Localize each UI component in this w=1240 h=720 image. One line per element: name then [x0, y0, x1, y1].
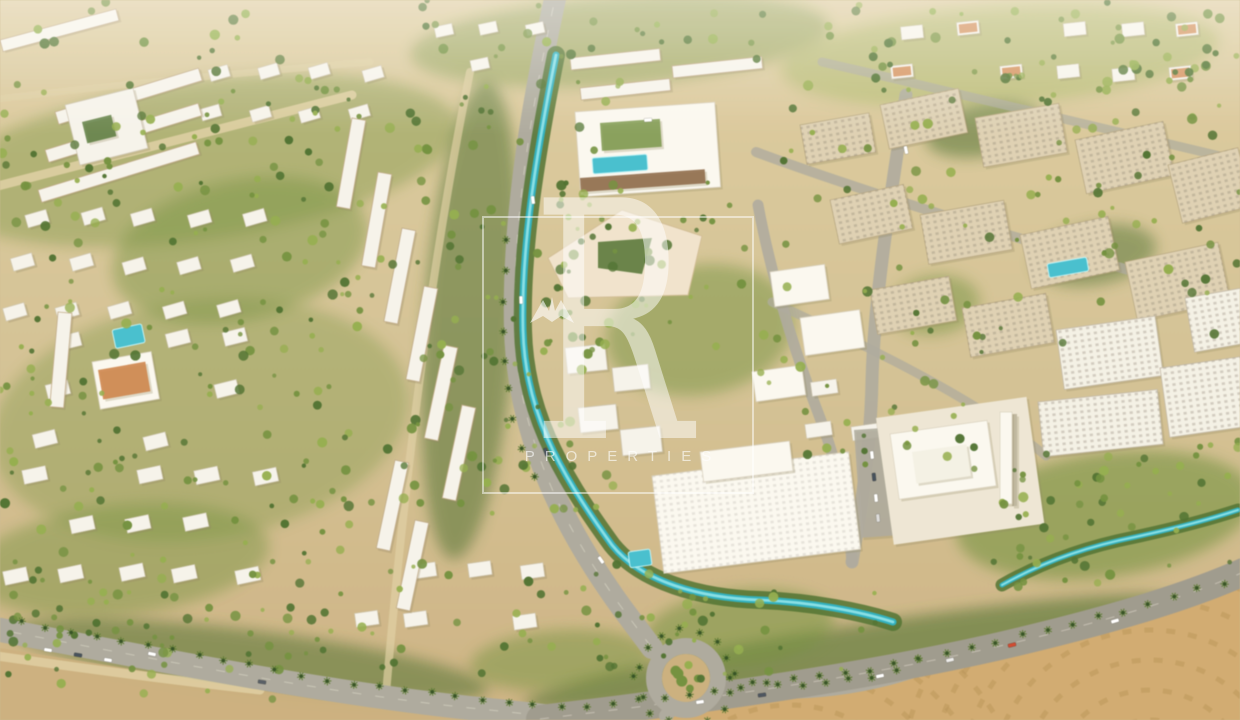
aerial-photo: R PROPERTIES [0, 0, 1240, 720]
aerial-render-scene [0, 0, 1240, 720]
warm-color-grade [0, 0, 1240, 720]
